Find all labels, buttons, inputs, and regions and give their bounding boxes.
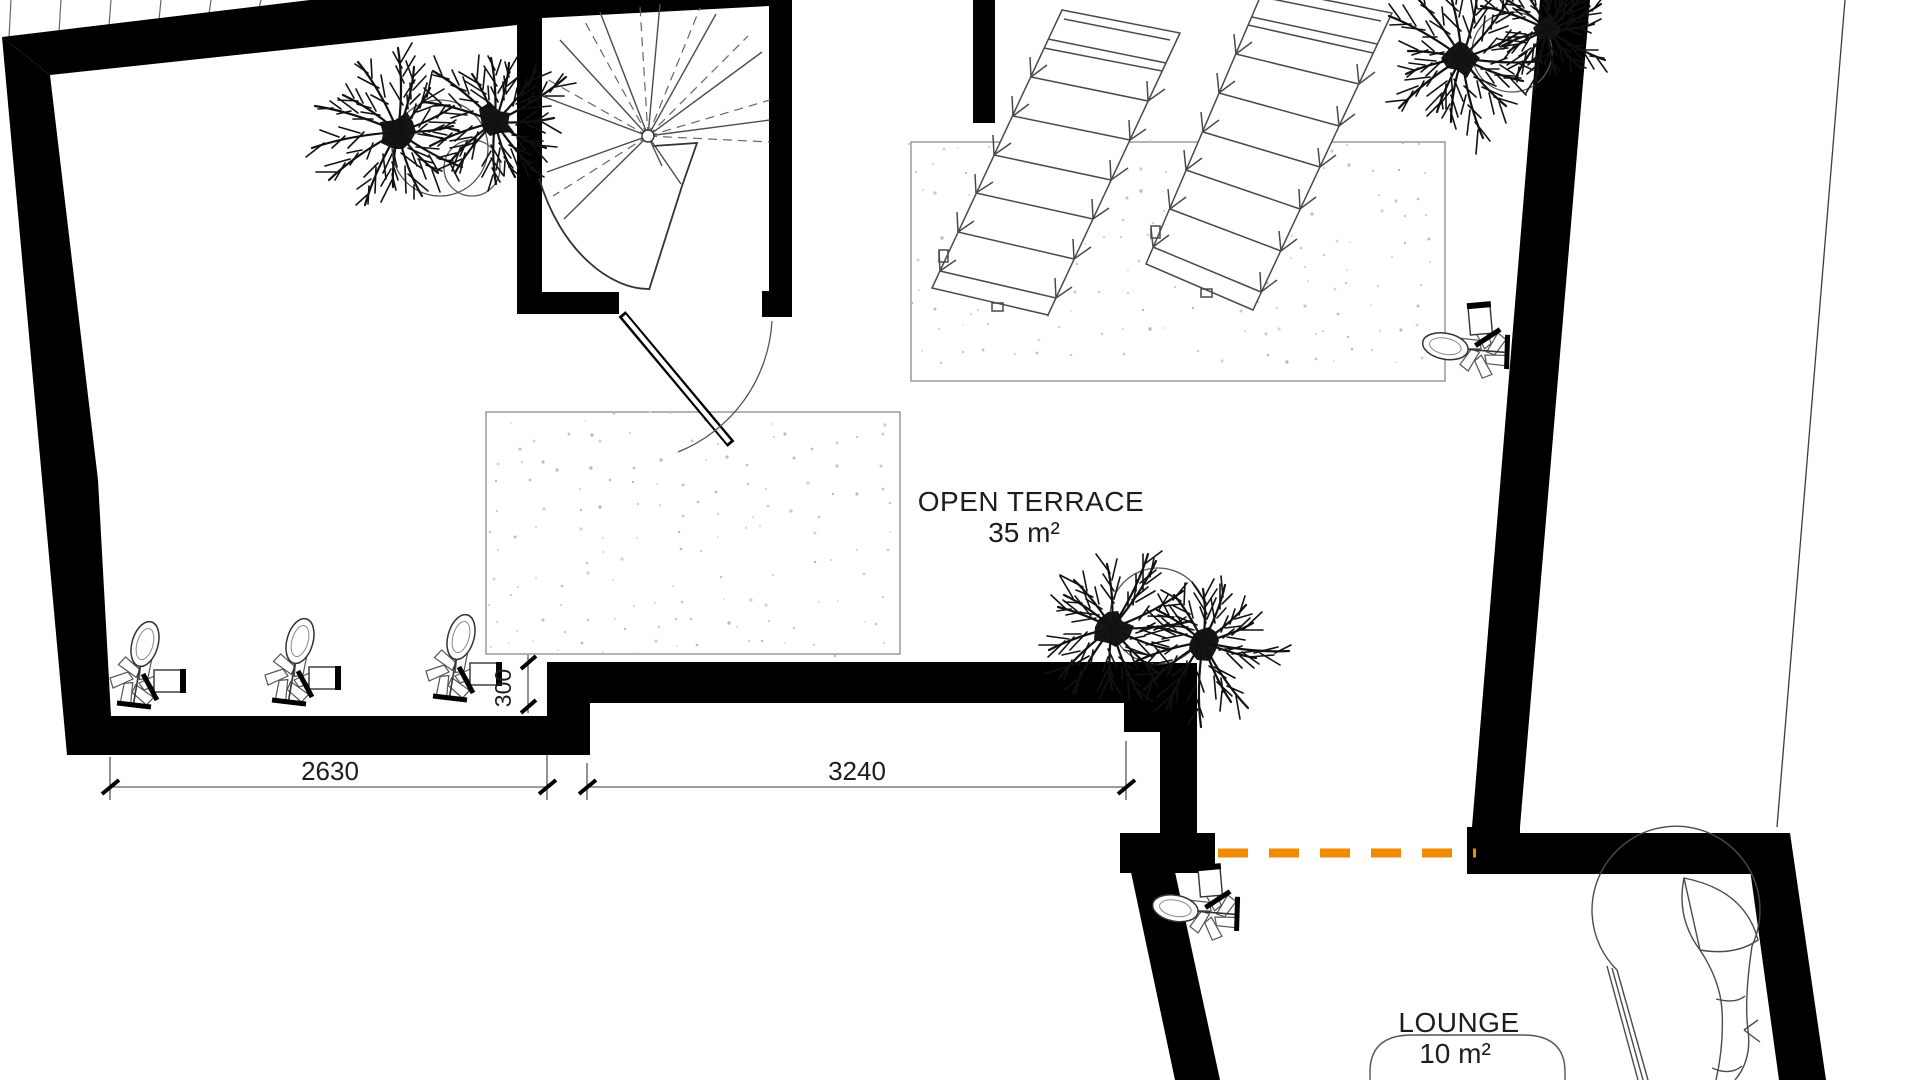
svg-text:300: 300 <box>490 669 516 707</box>
svg-text:10 m²: 10 m² <box>1419 1038 1491 1069</box>
svg-text:3240: 3240 <box>828 756 886 786</box>
svg-text:35 m²: 35 m² <box>988 517 1060 548</box>
svg-text:LOUNGE: LOUNGE <box>1398 1007 1519 1038</box>
svg-text:OPEN TERRACE: OPEN TERRACE <box>918 486 1144 517</box>
svg-text:2630: 2630 <box>301 756 359 786</box>
